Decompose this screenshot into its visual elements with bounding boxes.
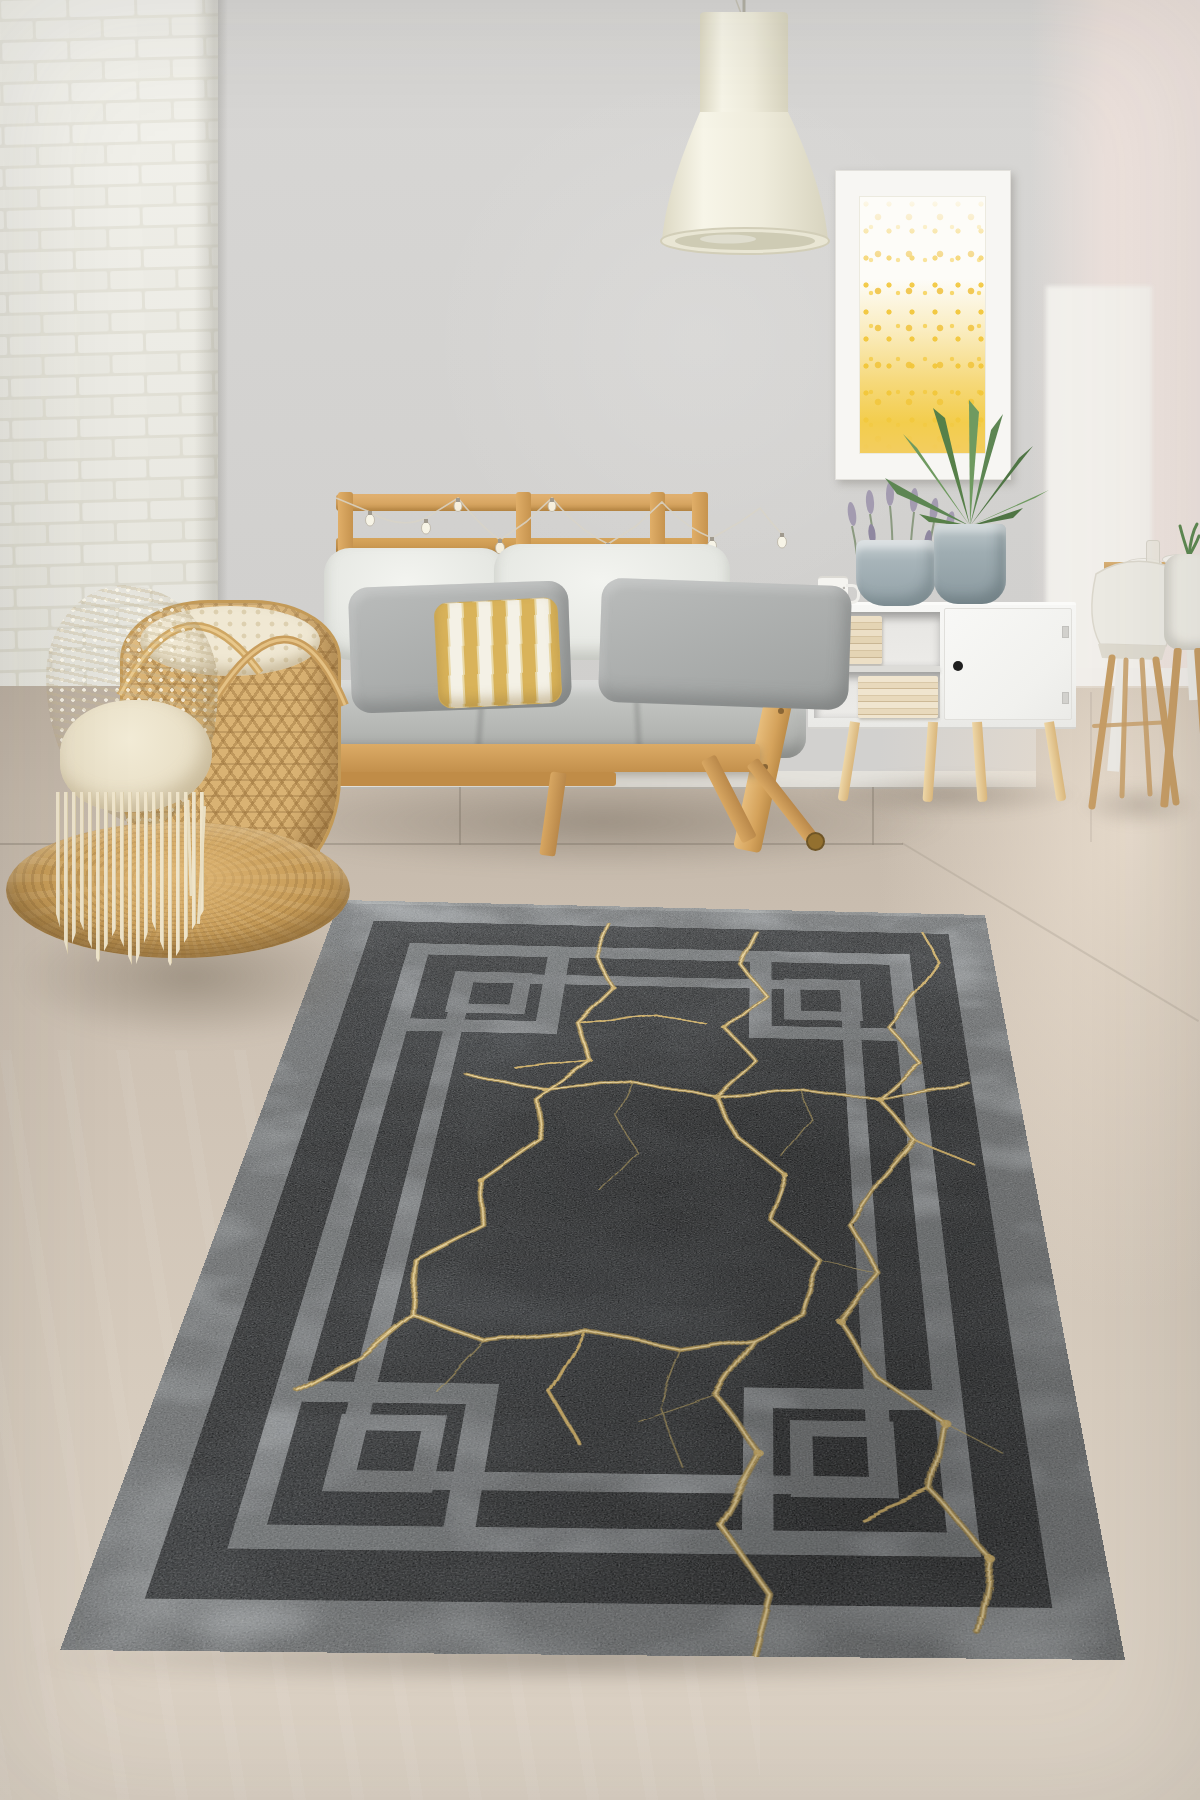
plant-pot-lavender	[856, 540, 936, 606]
gold-striped-pillow	[433, 597, 562, 709]
sideboard-door-knob	[953, 661, 963, 671]
bolt-dot	[778, 708, 784, 714]
sofa-base-rail	[292, 744, 760, 772]
living-room-photo	[0, 0, 1200, 1800]
dracaena-plant	[885, 396, 1055, 536]
plant-pot-dracaena	[934, 524, 1006, 604]
tile-grout-line	[872, 787, 874, 845]
book-stack	[858, 676, 938, 718]
door-hinge	[1062, 692, 1069, 704]
pendant-lamp	[630, 0, 840, 266]
dining-chair-partial	[1164, 554, 1200, 650]
door-hinge	[1062, 626, 1069, 638]
sideboard-door	[944, 608, 1072, 720]
sofa-stretcher	[304, 772, 616, 786]
tile-grout-line	[459, 787, 461, 845]
gray-pillow	[598, 578, 852, 711]
sofa-foot-dowel	[806, 832, 825, 851]
